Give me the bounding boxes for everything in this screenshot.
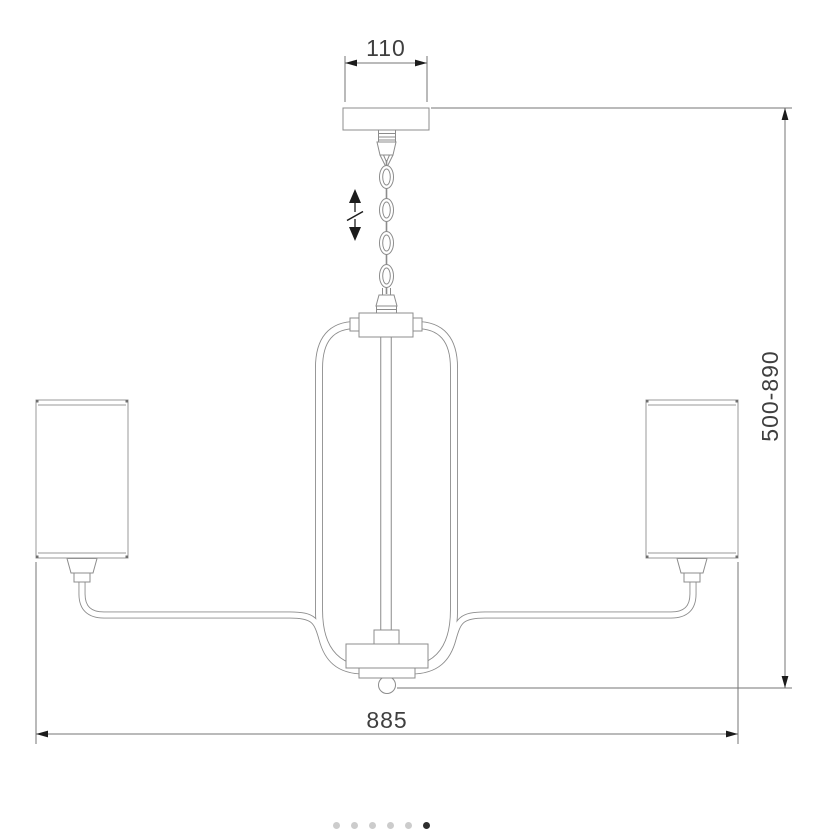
chain	[380, 160, 394, 294]
top-hub	[350, 313, 422, 337]
fixture-arms-core	[82, 325, 693, 671]
hub-nub-right	[413, 318, 422, 331]
height-adjust-icon	[347, 189, 363, 241]
lamp-shade-left	[36, 400, 128, 558]
socket-right	[677, 559, 707, 583]
socket-left	[67, 559, 97, 583]
technical-drawing-page: 110 500-890 885	[0, 0, 828, 828]
bottom-hub-plate	[359, 668, 415, 678]
bottom-finial	[379, 677, 396, 694]
top-hub-body	[359, 313, 413, 337]
dimension-label-canopy-width: 110	[336, 36, 436, 60]
dimension-label-height-range: 500-890	[758, 316, 782, 476]
ceiling-canopy	[343, 108, 429, 130]
dimension-top	[345, 56, 427, 102]
lamp-shade-right	[646, 400, 738, 558]
chandelier-diagram	[0, 0, 828, 828]
dimension-label-overall-width: 885	[337, 708, 437, 732]
bottom-hub-body	[346, 644, 428, 668]
hub-nub-left	[350, 318, 359, 331]
